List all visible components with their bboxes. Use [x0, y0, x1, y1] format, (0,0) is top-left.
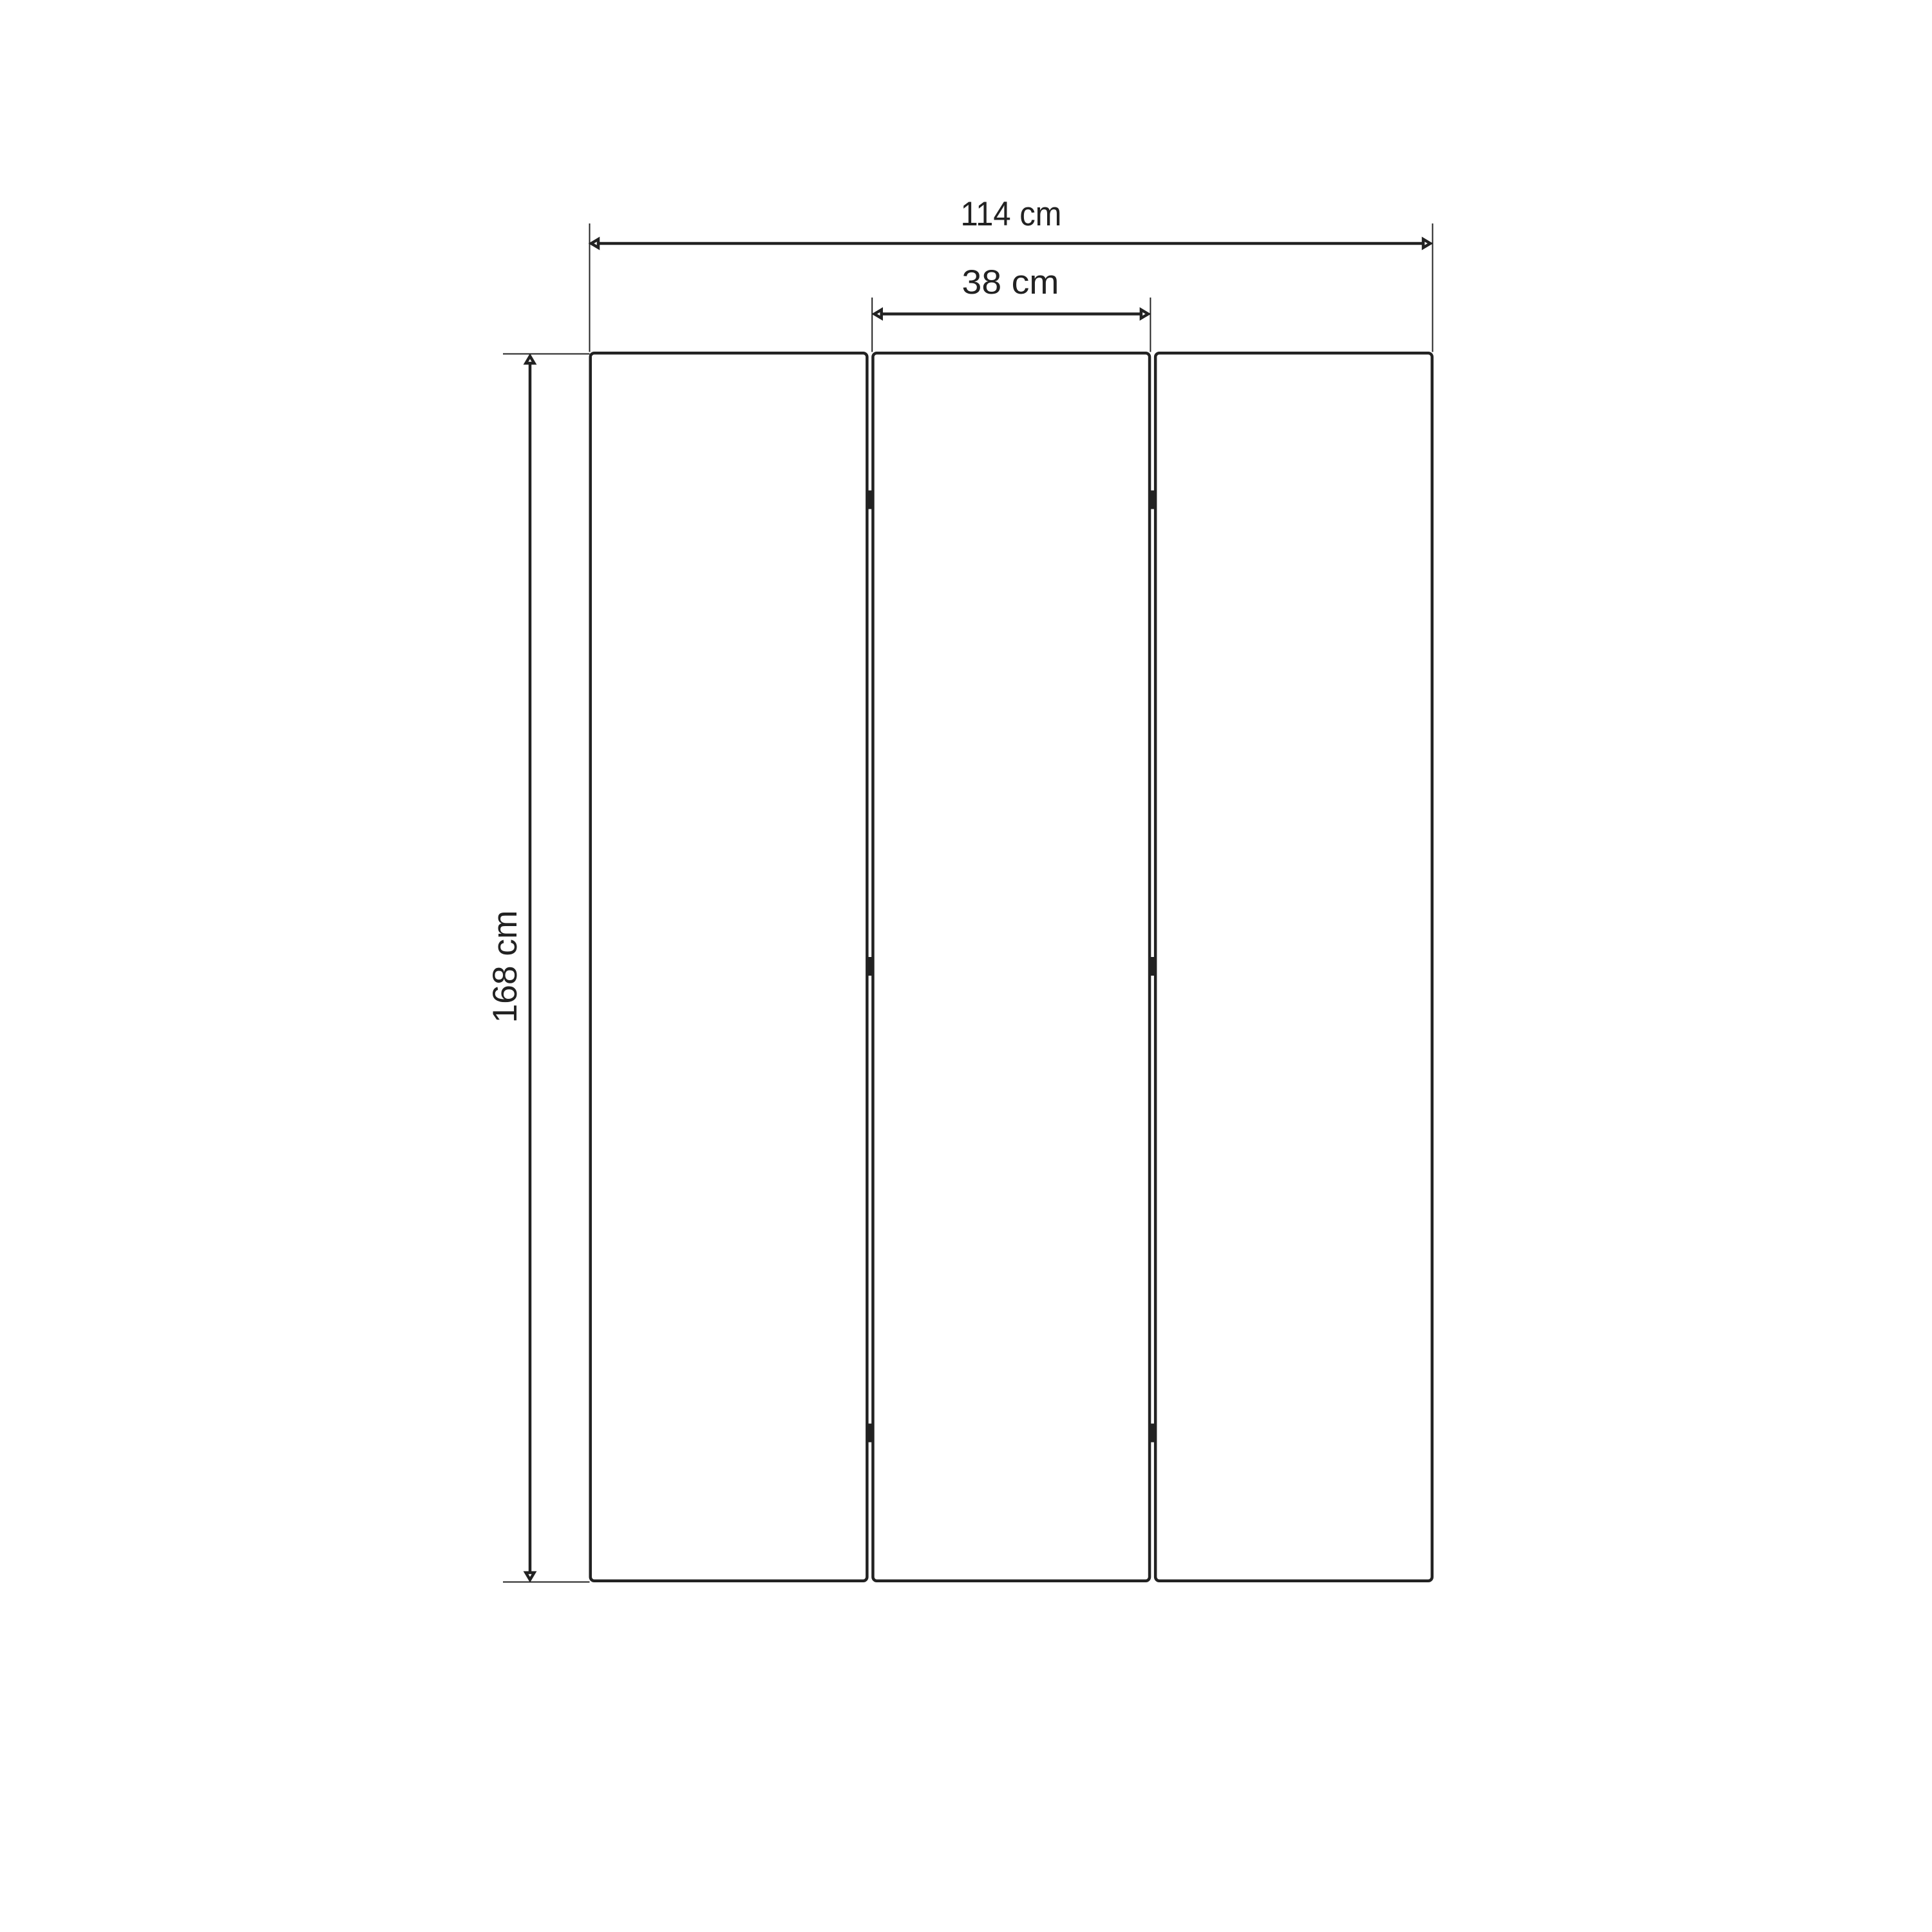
svg-text:114 cm: 114 cm: [961, 195, 1062, 233]
svg-text:38 cm: 38 cm: [962, 263, 1059, 301]
svg-text:168 cm: 168 cm: [486, 911, 524, 1023]
